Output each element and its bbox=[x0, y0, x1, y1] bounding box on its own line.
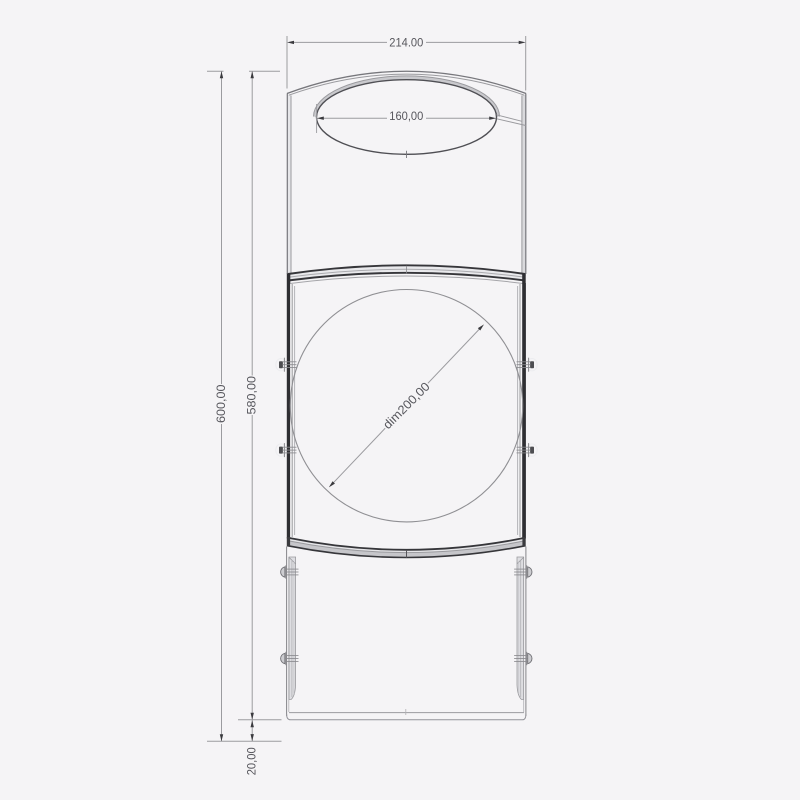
svg-text:214.00: 214.00 bbox=[389, 35, 423, 49]
svg-text:20,00: 20,00 bbox=[244, 747, 258, 775]
svg-text:600,00: 600,00 bbox=[214, 384, 228, 423]
svg-text:160,00: 160,00 bbox=[389, 109, 423, 123]
svg-text:580,00: 580,00 bbox=[245, 376, 259, 415]
